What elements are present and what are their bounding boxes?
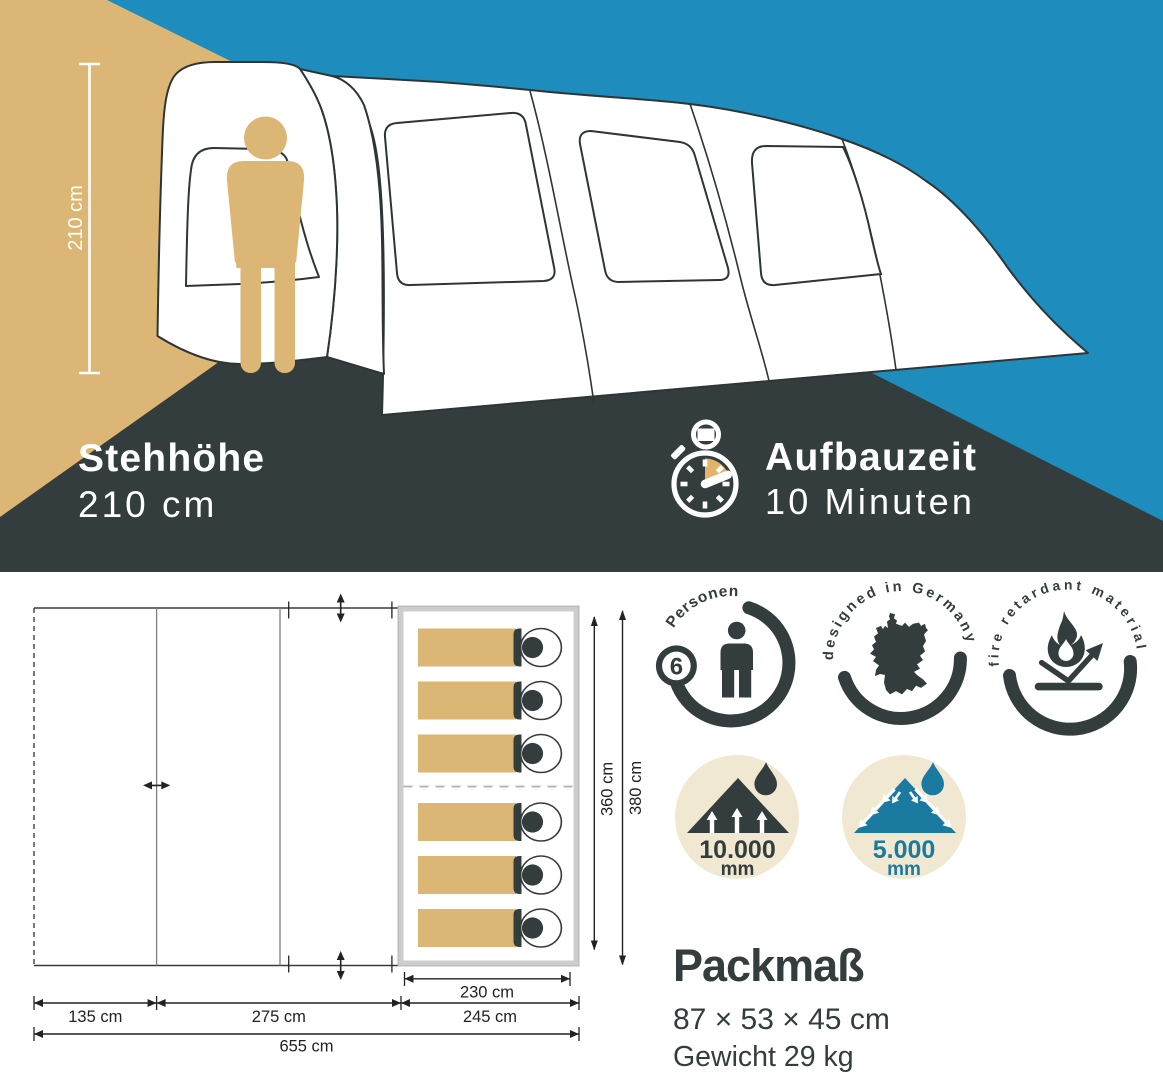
svg-text:mm: mm [721, 859, 755, 880]
svg-text:230 cm: 230 cm [460, 984, 514, 1002]
svg-text:f: f [987, 661, 1002, 667]
svg-text:i: i [986, 654, 1001, 658]
svg-text:360 cm: 360 cm [599, 762, 617, 816]
svg-text:210 cm: 210 cm [65, 185, 87, 251]
svg-text:mm: mm [887, 859, 921, 880]
svg-text:210 cm: 210 cm [78, 484, 217, 525]
svg-text:n: n [1064, 577, 1072, 592]
svg-text:Stehhöhe: Stehhöhe [78, 437, 265, 480]
svg-text:r: r [987, 643, 1003, 651]
svg-text:Packmaß: Packmaß [673, 940, 864, 991]
svg-text:d: d [821, 651, 837, 661]
svg-text:a: a [1051, 578, 1061, 594]
svg-text:n: n [728, 583, 738, 600]
svg-text:275 cm: 275 cm [252, 1008, 306, 1026]
svg-text:t: t [1075, 578, 1082, 594]
svg-text:Aufbauzeit: Aufbauzeit [765, 436, 977, 479]
svg-text:y: y [961, 631, 979, 643]
svg-text:G: G [910, 580, 925, 598]
svg-text:380 cm: 380 cm [627, 761, 645, 815]
svg-text:d: d [1038, 580, 1051, 597]
svg-text:87 × 53 × 45 cm: 87 × 53 × 45 cm [673, 1003, 890, 1036]
svg-text:n: n [892, 579, 902, 595]
svg-text:i: i [884, 580, 891, 596]
svg-text:e: e [989, 631, 1006, 643]
svg-text:135 cm: 135 cm [68, 1008, 122, 1026]
svg-text:m: m [1089, 582, 1106, 601]
svg-text:10 Minuten: 10 Minuten [765, 481, 975, 522]
svg-text:a: a [1130, 631, 1147, 643]
svg-text:l: l [1133, 644, 1148, 650]
svg-text:6: 6 [670, 654, 683, 681]
svg-text:e: e [718, 583, 729, 601]
svg-text:655 cm: 655 cm [279, 1038, 333, 1056]
svg-text:245 cm: 245 cm [463, 1008, 517, 1026]
svg-text:Gewicht 29 kg: Gewicht 29 kg [673, 1041, 854, 1073]
svg-text:e: e [822, 638, 839, 649]
